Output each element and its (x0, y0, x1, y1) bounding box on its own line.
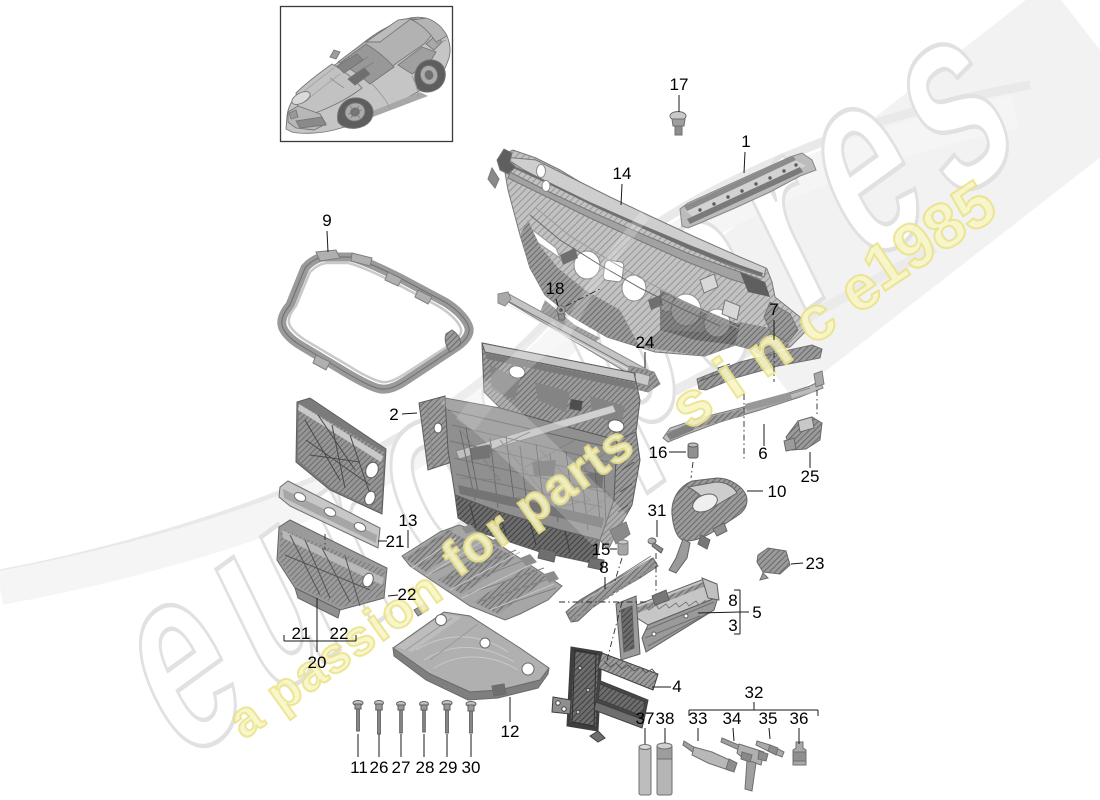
svg-text:22: 22 (398, 585, 417, 604)
svg-text:21: 21 (386, 532, 405, 551)
svg-text:14: 14 (613, 164, 632, 183)
svg-text:12: 12 (501, 722, 520, 741)
svg-text:9: 9 (322, 211, 331, 230)
svg-text:6: 6 (758, 444, 767, 463)
svg-text:2: 2 (389, 405, 398, 424)
svg-text:23: 23 (806, 554, 825, 573)
svg-text:28: 28 (416, 758, 435, 777)
svg-text:30: 30 (462, 758, 481, 777)
svg-text:38: 38 (656, 709, 675, 728)
svg-text:35: 35 (759, 709, 778, 728)
svg-text:29: 29 (439, 758, 458, 777)
svg-text:31: 31 (648, 501, 667, 520)
svg-text:20: 20 (308, 653, 327, 672)
svg-text:36: 36 (790, 709, 809, 728)
svg-text:1: 1 (741, 132, 750, 151)
svg-text:3: 3 (728, 616, 737, 635)
svg-text:10: 10 (768, 482, 787, 501)
svg-text:22: 22 (330, 624, 349, 643)
svg-text:5: 5 (752, 603, 761, 622)
svg-text:34: 34 (723, 709, 742, 728)
svg-text:8: 8 (728, 591, 737, 610)
svg-text:37: 37 (636, 709, 655, 728)
svg-text:13: 13 (399, 511, 418, 530)
svg-text:18: 18 (546, 279, 565, 298)
svg-text:17: 17 (670, 75, 689, 94)
svg-text:8: 8 (599, 558, 608, 577)
svg-text:7: 7 (769, 300, 778, 319)
svg-text:32: 32 (745, 683, 764, 702)
svg-text:21: 21 (292, 624, 311, 643)
svg-text:24: 24 (636, 333, 655, 352)
svg-text:11: 11 (350, 758, 368, 777)
svg-text:33: 33 (689, 709, 708, 728)
svg-text:16: 16 (649, 443, 668, 462)
svg-text:25: 25 (801, 467, 820, 486)
svg-text:4: 4 (672, 677, 681, 696)
svg-text:26: 26 (370, 758, 389, 777)
svg-text:15: 15 (592, 540, 611, 559)
svg-text:27: 27 (392, 758, 411, 777)
